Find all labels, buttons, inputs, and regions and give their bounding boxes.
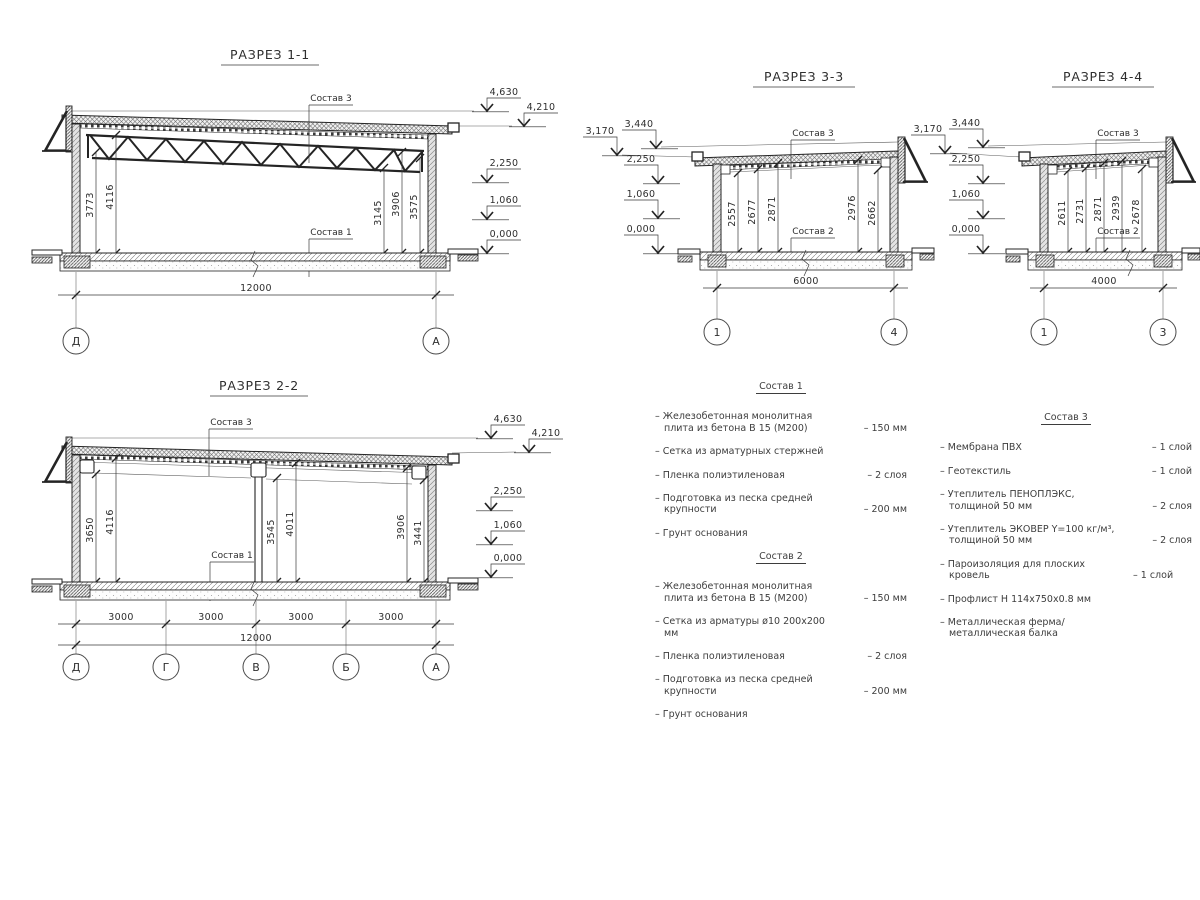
elevation-value: 0,000 [490, 229, 519, 240]
drawing-sheet: РАЗРЕЗ 1-1 Состав 3 Состав 1 3773 4116 3… [0, 0, 1200, 900]
roof-edge-cap [448, 454, 459, 463]
elevation-value: 2,250 [490, 158, 519, 169]
dim-value: 3545 [266, 519, 277, 544]
grid-label: Г [163, 661, 170, 674]
span-dimension: 12000 [58, 272, 454, 328]
list-item: – Грунт основания [655, 709, 907, 720]
floor-slab [1006, 248, 1200, 276]
elevation-value: 4,630 [490, 87, 519, 98]
section-title: РАЗРЕЗ 1-1 [230, 47, 310, 62]
list-item: – Грунт основания [655, 528, 907, 539]
roof-edge-cap [448, 123, 459, 132]
list-title: Состав 3 [940, 412, 1192, 423]
dim-value: 2557 [727, 201, 738, 226]
wall-right [428, 465, 436, 582]
list-item: – Железобетонная монолитная плита из бет… [655, 411, 907, 434]
parapet-post [898, 137, 905, 183]
span-dimensions: 3000 3000 3000 3000 12000 [58, 601, 454, 654]
list-item: – Пленка полиэтиленовая – 2 слоя [655, 470, 907, 481]
grid-label: 1 [714, 326, 721, 339]
span-total-value: 12000 [240, 633, 272, 644]
grid-bubbles: Д А [63, 328, 449, 354]
elevation-value: 0,000 [952, 224, 981, 235]
roof-edge-cap [692, 152, 703, 161]
svg-text:Состав 1: Состав 1 [211, 551, 252, 561]
list-item: – Сетка из арматуры ø10 200х200 мм [655, 616, 907, 639]
parapet-post [1166, 137, 1173, 183]
list-title: Состав 1 [655, 381, 907, 392]
section-2-2: РАЗРЕЗ 2-2 Состав 3 Состав 1 3650 4116 3… [32, 378, 563, 680]
list-item: – Профлист Н 114х750х0.8 мм [940, 594, 1192, 605]
list-item: – Железобетонная монолитная плита из бет… [655, 581, 907, 604]
grid-label: А [432, 661, 440, 674]
composition-list-1: Состав 1 – Железобетонная монолитная пли… [655, 381, 907, 551]
elevation-value: 2,250 [627, 154, 656, 165]
dim-value: 3441 [413, 520, 424, 545]
elevation-value: 4,210 [527, 102, 556, 113]
dim-value: 2871 [1093, 196, 1104, 221]
list-item: – Геотекстиль – 1 слой [940, 466, 1192, 477]
section-1-1: РАЗРЕЗ 1-1 Состав 3 Состав 1 3773 4116 3… [32, 47, 558, 354]
floor-slab [32, 249, 478, 277]
dim-value: 2939 [1111, 195, 1122, 220]
grid-label: 4 [891, 326, 898, 339]
svg-text:Состав 3: Состав 3 [310, 94, 351, 104]
elevation-value: 3,170 [914, 124, 943, 135]
elevation-value: 1,060 [952, 189, 981, 200]
svg-text:Состав 2: Состав 2 [792, 227, 833, 237]
dim-value: 2678 [1131, 199, 1142, 224]
span-value: 3000 [108, 612, 133, 623]
elevation-value: 2,250 [494, 486, 523, 497]
dim-value: 2976 [847, 195, 858, 220]
span-value: 3000 [198, 612, 223, 623]
svg-text:Состав 3: Состав 3 [1097, 129, 1138, 139]
dim-value: 3650 [85, 517, 96, 542]
wall-left [72, 455, 80, 582]
elevation-value: 3,440 [625, 119, 654, 130]
elevation-value: 2,250 [952, 154, 981, 165]
wall-right [890, 157, 898, 252]
dim-value: 3145 [373, 200, 384, 225]
dim-value: 2677 [747, 199, 758, 224]
list-title: Состав 2 [655, 551, 907, 562]
elevation-marks: 3,170 3,440 2,250 1,060 0,000 [583, 119, 680, 254]
elevation-marks: 3,170 3,440 2,250 1,060 0,000 [911, 118, 1005, 254]
dim-value: 2871 [767, 196, 778, 221]
list-item: – Металлическая ферма/ металлическая бал… [940, 617, 1192, 640]
grid-label: 1 [1041, 326, 1048, 339]
grid-bubbles: 1 3 [1031, 319, 1176, 345]
elevation-value: 1,060 [494, 520, 523, 531]
dim-value: 3906 [396, 514, 407, 539]
wall-right [428, 134, 436, 253]
span-value: 3000 [288, 612, 313, 623]
dim-value: 2731 [1075, 198, 1086, 223]
wall-right [1158, 157, 1166, 252]
grid-label: Д [72, 335, 81, 348]
dim-value: 3773 [85, 192, 96, 217]
section-title: РАЗРЕЗ 3-3 [764, 69, 844, 84]
span-value: 12000 [240, 283, 272, 294]
grid-label: В [252, 661, 260, 674]
grid-label: Б [342, 661, 350, 674]
span-value: 3000 [378, 612, 403, 623]
interior-dimensions: 2611 2731 2871 2939 2678 [1057, 157, 1146, 256]
composition-list-3: Состав 3 – Мембрана ПВХ – 1 слой – Геоте… [940, 412, 1192, 652]
roof-edge-cap [1019, 152, 1030, 161]
section-4-4: РАЗРЕЗ 4-4 Состав 3 Состав 2 2611 2731 2… [911, 69, 1200, 345]
span-dimension: 4000 [1030, 271, 1177, 319]
grid-label: А [432, 335, 440, 348]
wall-left [713, 164, 721, 252]
steel-truss [86, 135, 424, 172]
list-item: – Подготовка из песка средней крупности … [655, 493, 907, 516]
dim-value: 2611 [1057, 200, 1068, 225]
dim-value: 4116 [105, 184, 116, 209]
section-title: РАЗРЕЗ 4-4 [1063, 69, 1143, 84]
elevation-value: 0,000 [627, 224, 656, 235]
floor-slab [32, 578, 478, 606]
list-item: – Утеплитель ПЕНОПЛЭКС, толщиной 50 мм –… [940, 489, 1192, 512]
span-value: 6000 [793, 276, 818, 287]
elevation-value: 3,440 [952, 118, 981, 129]
list-item: – Пароизоляция для плоских кровель – 1 с… [940, 559, 1192, 582]
dim-value: 4011 [285, 511, 296, 536]
elevation-marks: 4,630 4,210 2,250 1,060 0,000 [476, 414, 563, 578]
floor-slab [678, 248, 934, 276]
interior-column [255, 477, 262, 582]
elevation-value: 3,170 [586, 126, 615, 137]
dim-value: 3575 [409, 194, 420, 219]
grid-bubbles: 1 4 [704, 319, 907, 345]
interior-dimensions: 3773 4116 3145 3906 3575 [85, 131, 424, 257]
elevation-value: 0,000 [494, 553, 523, 564]
composition-list-2: Состав 2 – Железобетонная монолитная пли… [655, 551, 907, 733]
section-3-3: РАЗРЕЗ 3-3 Состав 3 Состав 2 2557 2677 2… [583, 69, 934, 345]
elevation-value: 1,060 [490, 195, 519, 206]
elevation-value: 1,060 [627, 189, 656, 200]
svg-text:Состав 1: Состав 1 [310, 228, 351, 238]
list-item: – Сетка из арматурных стержней [655, 446, 907, 457]
grid-label: Д [72, 661, 81, 674]
dim-value: 2662 [867, 200, 878, 225]
svg-text:Состав 2: Состав 2 [1097, 227, 1138, 237]
span-value: 4000 [1091, 276, 1116, 287]
list-item: – Утеплитель ЭКОВЕР Y=100 кг/м³, толщино… [940, 524, 1192, 547]
list-item: – Мембрана ПВХ – 1 слой [940, 442, 1192, 453]
grid-bubbles: Д Г В Б А [63, 654, 449, 680]
grid-label: 3 [1160, 326, 1167, 339]
elevation-value: 4,630 [494, 414, 523, 425]
span-dimension: 6000 [703, 271, 908, 319]
section-title: РАЗРЕЗ 2-2 [219, 378, 299, 393]
wall-left [1040, 164, 1048, 252]
svg-text:Состав 3: Состав 3 [792, 129, 833, 139]
list-item: – Пленка полиэтиленовая – 2 слоя [655, 651, 907, 662]
elevation-value: 4,210 [532, 428, 561, 439]
wall-left [72, 124, 80, 253]
dim-value: 3906 [391, 191, 402, 216]
dim-value: 4116 [105, 509, 116, 534]
list-item: – Подготовка из песка средней крупности … [655, 674, 907, 697]
roof-beams [80, 460, 428, 484]
elevation-marks: 4,630 4,210 2,250 1,060 0,000 [472, 87, 558, 254]
svg-text:Состав 3: Состав 3 [210, 418, 251, 428]
